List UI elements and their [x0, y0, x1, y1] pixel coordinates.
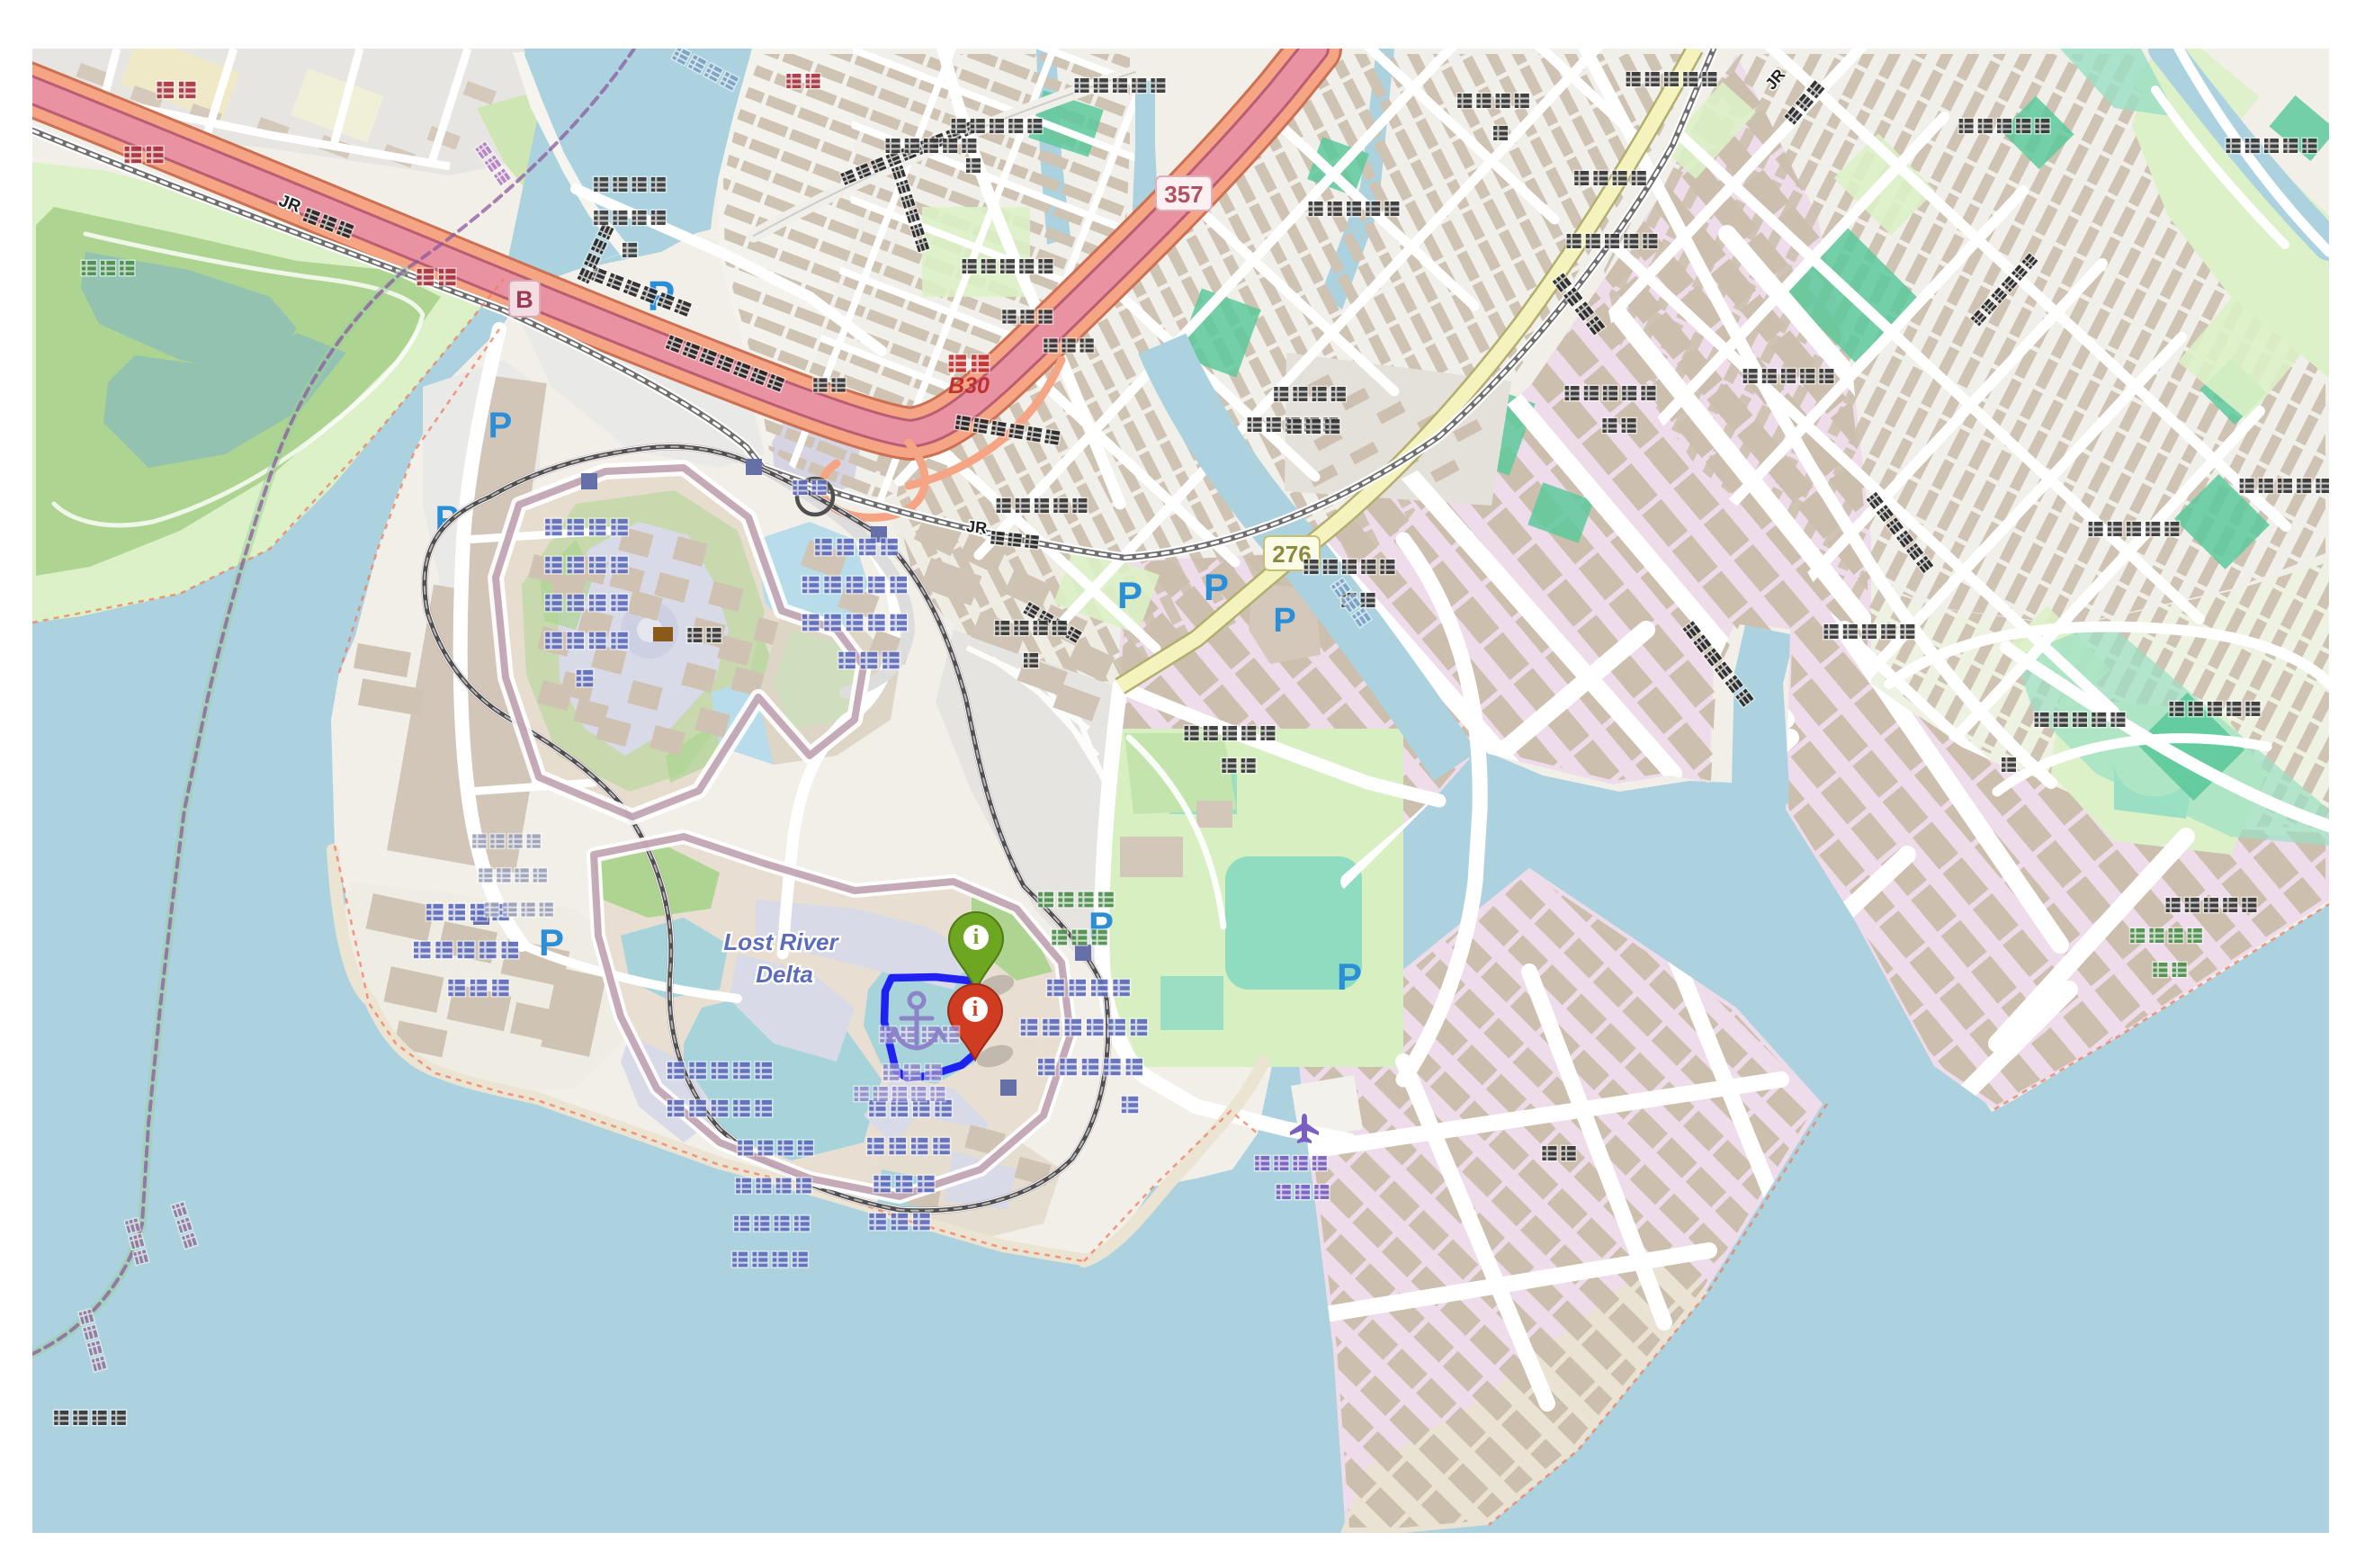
svg-text:P: P [1204, 566, 1229, 608]
svg-text:Lost River: Lost River [723, 928, 839, 955]
svg-text:B30: B30 [948, 373, 990, 399]
svg-text:i: i [973, 926, 980, 949]
svg-text:P: P [1117, 574, 1142, 616]
svg-text:357: 357 [1164, 181, 1203, 208]
svg-text:P: P [539, 921, 564, 963]
svg-text:P: P [1273, 602, 1295, 640]
svg-text:i: i [972, 998, 979, 1021]
svg-text:B: B [515, 286, 533, 313]
svg-text:P: P [488, 406, 513, 445]
svg-text:P: P [1337, 955, 1362, 998]
svg-text:JR: JR [965, 517, 988, 537]
svg-text:Delta: Delta [756, 961, 813, 988]
